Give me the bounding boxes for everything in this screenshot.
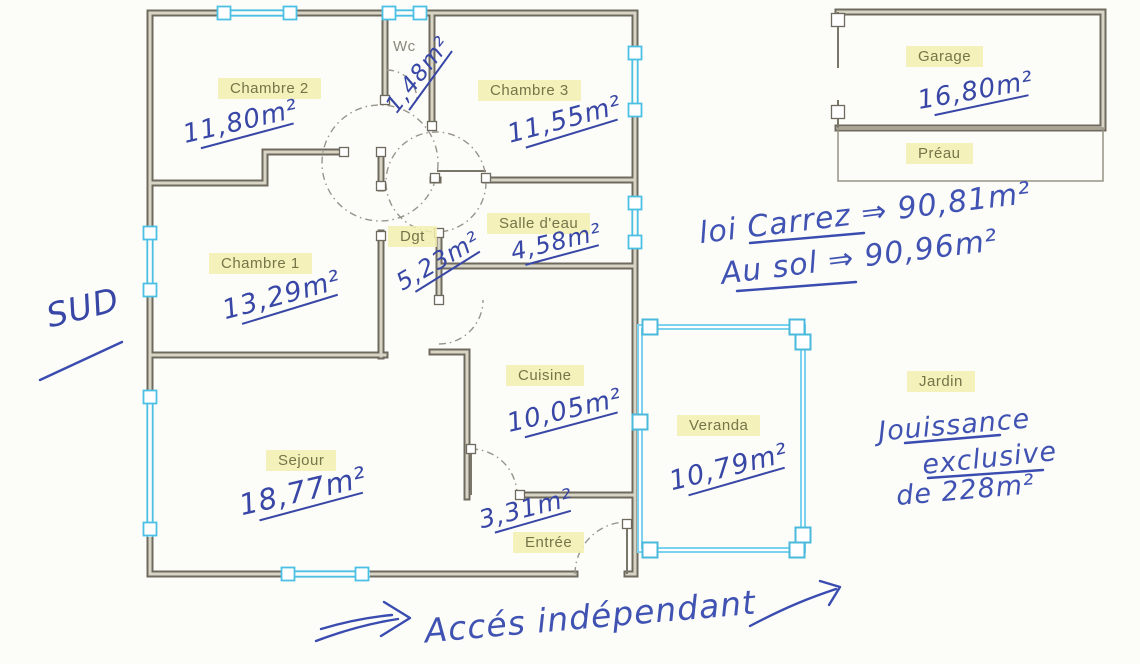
room-label-chambre-1: Chambre 1: [209, 253, 312, 274]
room-label-entree: Entrée: [513, 532, 584, 553]
sud-underline: [40, 342, 122, 380]
room-label-chambre-3: Chambre 3: [478, 80, 581, 101]
acces-arrow: [316, 602, 410, 641]
floor-plan-scan: Chambre 2 Wc Chambre 3 Salle d'eau Dgt C…: [0, 0, 1140, 664]
room-label-wc: Wc: [391, 36, 418, 57]
room-label-preau: Préau: [906, 143, 973, 164]
room-label-veranda: Veranda: [677, 415, 760, 436]
veranda-arrow: [750, 581, 840, 626]
room-label-dgt: Dgt: [388, 226, 437, 247]
room-label-garage: Garage: [906, 46, 983, 67]
room-label-jardin: Jardin: [907, 371, 975, 392]
room-label-cuisine: Cuisine: [506, 365, 584, 386]
room-label-chambre-2: Chambre 2: [218, 78, 321, 99]
